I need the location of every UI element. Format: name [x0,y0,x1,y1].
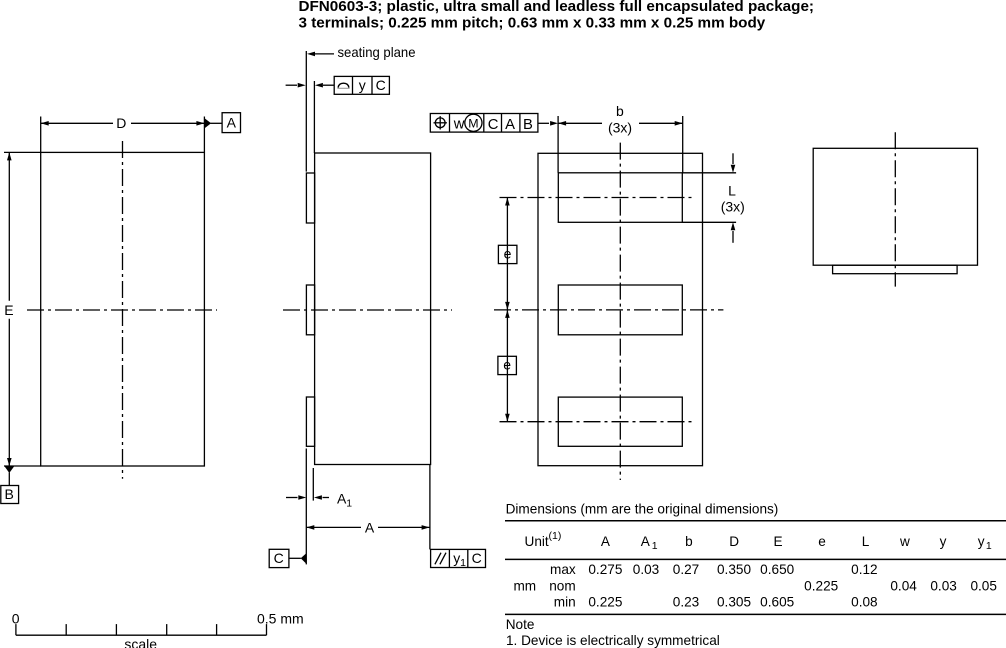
svg-text:mm: mm [513,578,536,593]
svg-text:0.04: 0.04 [890,578,917,593]
svg-text:e: e [504,245,512,261]
svg-text:w: w [899,534,910,549]
svg-text:DFN0603-3; plastic, ultra smal: DFN0603-3; plastic, ultra small and lead… [299,0,815,15]
svg-text:max: max [550,562,576,577]
svg-text:b: b [685,534,693,549]
svg-text:Note: Note [506,617,535,632]
svg-text:B: B [5,486,14,502]
svg-text:Dimensions (mm are the origina: Dimensions (mm are the original dimensio… [506,502,779,517]
svg-text:L: L [728,183,736,199]
svg-text:1: 1 [652,540,658,552]
svg-text:0.225: 0.225 [588,595,622,610]
svg-text:1: 1 [986,540,992,552]
svg-text:1. Device is electrically symm: 1. Device is electrically symmetrical [506,633,720,648]
svg-text:C: C [488,117,499,133]
svg-text:0.350: 0.350 [717,562,751,577]
svg-text:0.305: 0.305 [717,595,751,610]
svg-text:1: 1 [346,497,352,509]
svg-text:0.275: 0.275 [588,562,622,577]
svg-text:scale: scale [124,636,157,648]
svg-text:w: w [453,117,465,133]
svg-text:(3x): (3x) [721,198,745,214]
svg-text:B: B [523,117,533,133]
svg-text:A: A [227,115,237,131]
svg-text:3 terminals; 0.225 mm pitch; 0: 3 terminals; 0.225 mm pitch; 0.63 mm x 0… [299,14,766,31]
svg-text:0.5 mm: 0.5 mm [257,611,304,627]
svg-text:A: A [505,117,515,133]
svg-text:0.650: 0.650 [760,562,794,577]
svg-text:y: y [359,77,366,93]
svg-text:0.05: 0.05 [970,578,996,593]
svg-text:nom: nom [549,578,575,593]
svg-text:C: C [376,77,386,93]
svg-text:0.03: 0.03 [930,578,956,593]
svg-text:0.08: 0.08 [851,595,877,610]
svg-text:E: E [773,534,782,549]
svg-text:0: 0 [12,611,20,627]
svg-text:b: b [616,103,624,119]
svg-text:e: e [503,356,511,372]
svg-text:0.605: 0.605 [760,595,794,610]
svg-text:A: A [641,534,651,549]
svg-text:A: A [601,534,611,549]
svg-text:C: C [472,550,482,566]
svg-text:e: e [818,534,826,549]
svg-text:L: L [862,534,870,549]
svg-text:min: min [554,595,576,610]
svg-text:seating plane: seating plane [338,44,416,60]
svg-text:E: E [4,302,13,318]
svg-text:1: 1 [460,557,466,569]
svg-text:C: C [274,550,284,566]
svg-text:y: y [940,534,947,549]
svg-text:D: D [729,534,739,549]
svg-text:0.27: 0.27 [673,562,699,577]
svg-text:M: M [468,116,478,130]
svg-text:(1): (1) [549,530,562,542]
svg-text:A: A [365,519,375,535]
svg-text:Unit: Unit [525,534,549,549]
svg-text:0.23: 0.23 [673,595,699,610]
svg-text:y: y [978,534,985,549]
svg-text:D: D [116,115,126,131]
svg-text:(3x): (3x) [608,119,632,135]
svg-text:0.12: 0.12 [851,562,877,577]
svg-text:0.225: 0.225 [804,578,838,593]
svg-text:0.03: 0.03 [633,562,659,577]
